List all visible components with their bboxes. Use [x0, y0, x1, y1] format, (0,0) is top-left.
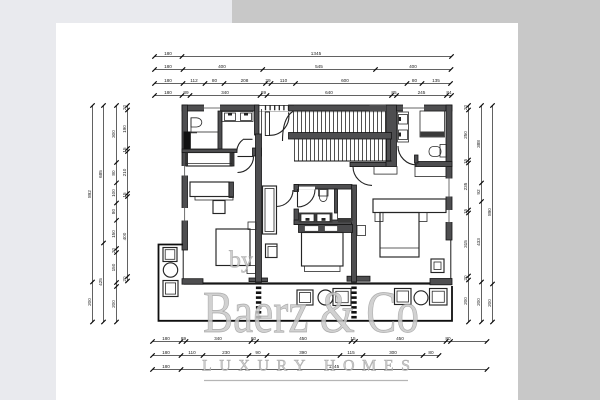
svg-text:180: 180 — [162, 364, 170, 369]
svg-text:300: 300 — [111, 130, 116, 138]
svg-text:90: 90 — [255, 350, 261, 355]
svg-text:388: 388 — [476, 140, 481, 148]
svg-text:300: 300 — [389, 350, 397, 355]
svg-text:200: 200 — [463, 297, 468, 305]
svg-text:135: 135 — [432, 78, 440, 83]
svg-text:190: 190 — [122, 125, 127, 133]
svg-text:890: 890 — [487, 208, 492, 216]
svg-text:400: 400 — [409, 64, 417, 69]
svg-text:245: 245 — [418, 90, 426, 95]
svg-text:210: 210 — [122, 168, 127, 176]
svg-text:180: 180 — [162, 336, 170, 341]
svg-text:15: 15 — [122, 192, 127, 198]
svg-text:80: 80 — [428, 350, 434, 355]
svg-text:80: 80 — [412, 78, 418, 83]
svg-text:180: 180 — [162, 350, 170, 355]
svg-text:Baerz & Co: Baerz & Co — [203, 279, 419, 345]
svg-text:200: 200 — [111, 300, 116, 308]
svg-text:20: 20 — [463, 275, 468, 281]
svg-text:110: 110 — [188, 350, 196, 355]
svg-text:80: 80 — [212, 78, 218, 83]
svg-text:208: 208 — [241, 78, 249, 83]
svg-text:85: 85 — [391, 90, 397, 95]
svg-text:545: 545 — [315, 64, 323, 69]
svg-text:80: 80 — [111, 170, 116, 176]
svg-text:200: 200 — [487, 299, 492, 307]
svg-text:112: 112 — [190, 78, 198, 83]
svg-text:600: 600 — [341, 78, 349, 83]
svg-text:15: 15 — [122, 147, 127, 153]
svg-text:340: 340 — [221, 90, 229, 95]
svg-text:400: 400 — [218, 64, 226, 69]
svg-text:by: by — [229, 248, 253, 274]
svg-text:235: 235 — [463, 182, 468, 190]
svg-text:390: 390 — [299, 350, 307, 355]
svg-text:892: 892 — [87, 190, 92, 198]
svg-text:180: 180 — [164, 64, 172, 69]
svg-text:29: 29 — [265, 78, 271, 83]
svg-text:180: 180 — [164, 78, 172, 83]
svg-text:685: 685 — [98, 170, 103, 178]
svg-text:180: 180 — [164, 51, 172, 56]
svg-text:20: 20 — [463, 105, 468, 111]
svg-text:20: 20 — [122, 105, 127, 111]
svg-text:400: 400 — [122, 232, 127, 240]
svg-text:200: 200 — [87, 298, 92, 306]
svg-text:230: 230 — [222, 350, 230, 355]
svg-text:89: 89 — [183, 90, 189, 95]
svg-text:180: 180 — [164, 90, 172, 95]
svg-text:110: 110 — [280, 78, 288, 83]
svg-text:315: 315 — [463, 240, 468, 248]
svg-text:80: 80 — [111, 209, 116, 215]
svg-text:15: 15 — [463, 209, 468, 215]
svg-text:20: 20 — [111, 248, 116, 254]
svg-text:150: 150 — [111, 263, 116, 271]
svg-text:80: 80 — [445, 336, 451, 341]
svg-text:20: 20 — [122, 276, 127, 282]
svg-text:115: 115 — [347, 350, 355, 355]
svg-text:15: 15 — [463, 159, 468, 165]
svg-text:92: 92 — [476, 189, 481, 195]
svg-text:250: 250 — [463, 131, 468, 139]
svg-text:84: 84 — [446, 90, 452, 95]
svg-text:1345: 1345 — [311, 51, 322, 56]
svg-text:425: 425 — [98, 278, 103, 286]
svg-text:433: 433 — [476, 238, 481, 246]
svg-text:89: 89 — [181, 336, 187, 341]
svg-text:640: 640 — [325, 90, 333, 95]
svg-text:200: 200 — [476, 298, 481, 306]
svg-text:100: 100 — [111, 189, 116, 197]
svg-text:89: 89 — [261, 90, 267, 95]
svg-text:150: 150 — [111, 230, 116, 238]
